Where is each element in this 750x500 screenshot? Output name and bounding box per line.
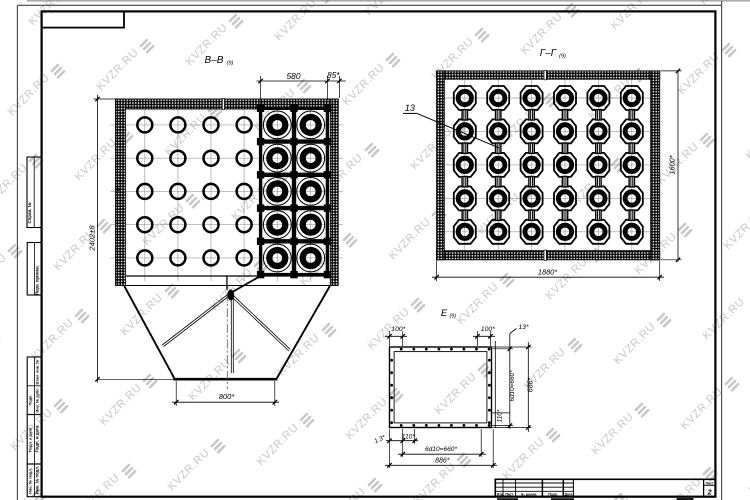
svg-text:Подп.: Подп. <box>548 492 558 496</box>
svg-text:Справ. №: Справ. № <box>27 202 32 223</box>
svg-text:Инв. № подл.: Инв. № подл. <box>28 468 33 494</box>
svg-text:Инв. № подл.: Инв. № подл. <box>35 466 40 495</box>
svg-text:Лист: Лист <box>705 481 713 485</box>
svg-text:686*: 686* <box>527 378 534 393</box>
svg-text:800*: 800* <box>219 392 236 401</box>
svg-text:Изм. Лист: Изм. Лист <box>497 492 514 496</box>
svg-text:Перв. примен.: Перв. примен. <box>35 265 40 295</box>
svg-text:№ докум.: № докум. <box>521 492 537 496</box>
svg-text:100*: 100* <box>481 326 495 333</box>
svg-text:(9): (9) <box>227 61 234 67</box>
svg-text:Подп. и дата: Подп. и дата <box>35 425 40 452</box>
svg-text:13: 13 <box>405 103 416 113</box>
svg-text:580: 580 <box>287 71 301 81</box>
svg-text:2: 2 <box>706 487 712 496</box>
svg-text:В–В: В–В <box>205 55 224 66</box>
svg-text:Подп.: Подп. <box>29 395 33 406</box>
svg-text:110*: 110* <box>497 409 504 422</box>
svg-text:(9): (9) <box>450 314 457 320</box>
svg-text:6d10=660*: 6d10=660* <box>425 446 458 453</box>
svg-text:Подп. и дата: Подп. и дата <box>28 427 33 452</box>
svg-text:100*: 100* <box>391 326 405 333</box>
svg-text:(9): (9) <box>559 54 566 60</box>
svg-text:85*: 85* <box>327 71 340 80</box>
svg-text:1880*: 1880* <box>538 268 558 277</box>
svg-text:Дата: Дата <box>565 492 573 496</box>
svg-text:13*: 13* <box>518 324 529 331</box>
svg-text:886*: 886* <box>435 457 450 464</box>
svg-text:2402±8: 2402±8 <box>88 225 97 252</box>
svg-text:110*: 110* <box>402 434 416 441</box>
svg-text:1600*: 1600* <box>668 154 677 174</box>
svg-text:Г–Г: Г–Г <box>540 48 558 59</box>
svg-text:6d10=660*: 6d10=660* <box>509 370 516 402</box>
svg-text:Е: Е <box>441 308 448 319</box>
svg-text:Взам. инв. №: Взам. инв. № <box>36 360 40 385</box>
svg-text:Инв. № дубл.: Инв. № дубл. <box>36 387 40 412</box>
